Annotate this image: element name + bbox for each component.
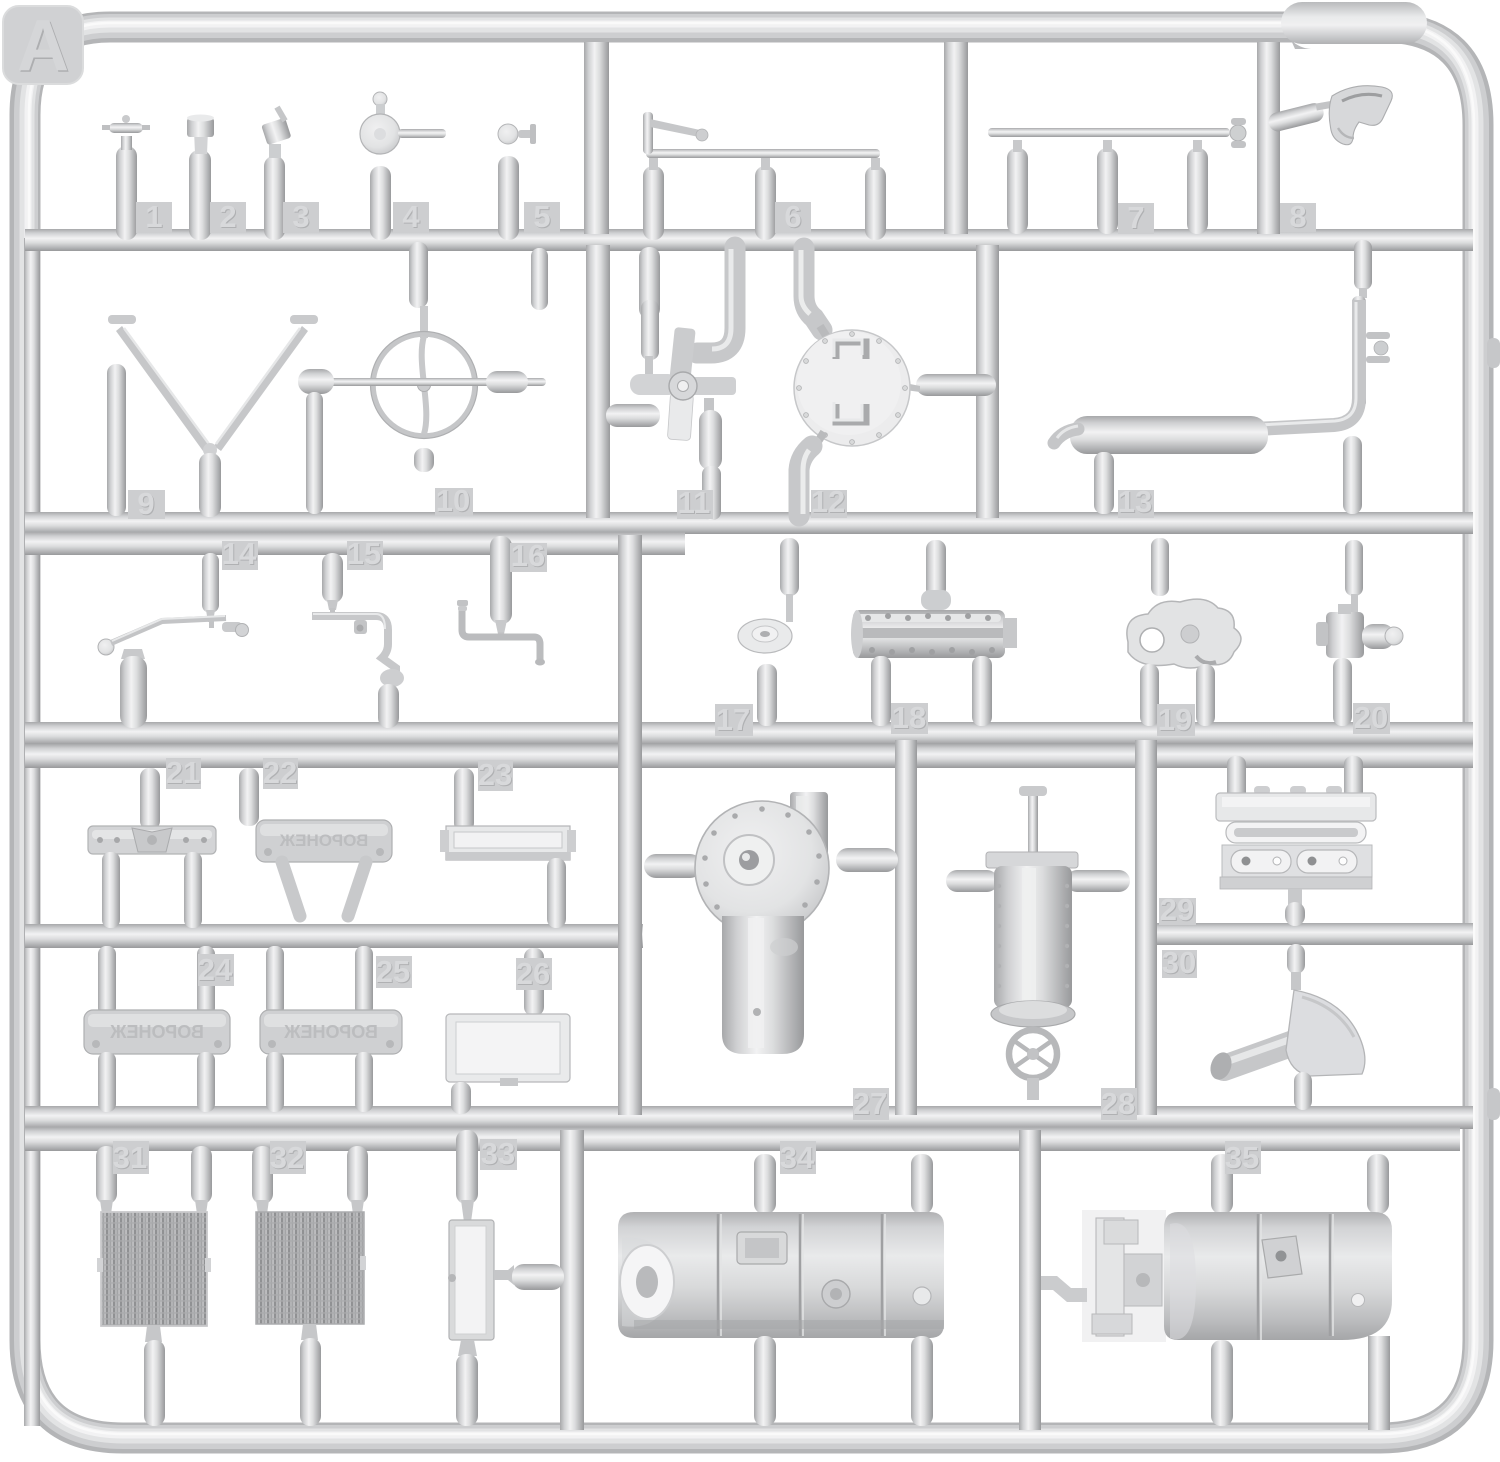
svg-text:32: 32	[270, 1140, 304, 1175]
svg-text:15: 15	[347, 536, 381, 571]
svg-text:25: 25	[376, 954, 410, 989]
svg-text:23: 23	[478, 757, 512, 792]
svg-text:17: 17	[716, 702, 750, 737]
svg-text:4: 4	[402, 199, 420, 234]
svg-text:7: 7	[1127, 200, 1144, 235]
svg-text:14: 14	[222, 536, 257, 571]
svg-text:27: 27	[853, 1086, 887, 1121]
svg-text:9: 9	[137, 486, 154, 521]
svg-text:10: 10	[436, 483, 470, 518]
svg-text:2: 2	[219, 199, 236, 234]
svg-text:35: 35	[1225, 1140, 1259, 1175]
svg-text:3: 3	[292, 199, 309, 234]
svg-text:28: 28	[1101, 1086, 1135, 1121]
svg-text:1: 1	[145, 199, 162, 234]
svg-text:26: 26	[516, 956, 550, 991]
svg-text:5: 5	[533, 199, 550, 234]
svg-text:34: 34	[780, 1140, 815, 1175]
svg-text:20: 20	[1354, 700, 1388, 735]
svg-text:ВОРОНЕЖ: ВОРОНЕЖ	[109, 1022, 203, 1042]
svg-text:6: 6	[784, 199, 801, 234]
svg-text:ВОРОНЕЖ: ВОРОНЕЖ	[283, 1022, 377, 1042]
svg-text:19: 19	[1158, 702, 1192, 737]
svg-text:24: 24	[198, 952, 233, 987]
svg-text:A: A	[17, 6, 69, 86]
svg-text:29: 29	[1160, 892, 1194, 927]
svg-text:21: 21	[166, 755, 200, 790]
svg-text:18: 18	[892, 700, 926, 735]
svg-text:12: 12	[811, 484, 845, 519]
svg-text:13: 13	[1118, 484, 1152, 519]
svg-text:11: 11	[678, 485, 711, 520]
svg-text:ВОРОНЕЖ: ВОРОНЕЖ	[279, 831, 368, 850]
svg-text:22: 22	[263, 755, 297, 790]
svg-text:30: 30	[1162, 945, 1196, 980]
svg-text:33: 33	[481, 1136, 515, 1171]
svg-text:8: 8	[1289, 199, 1306, 234]
svg-text:31: 31	[113, 1140, 147, 1175]
svg-text:16: 16	[511, 538, 545, 573]
